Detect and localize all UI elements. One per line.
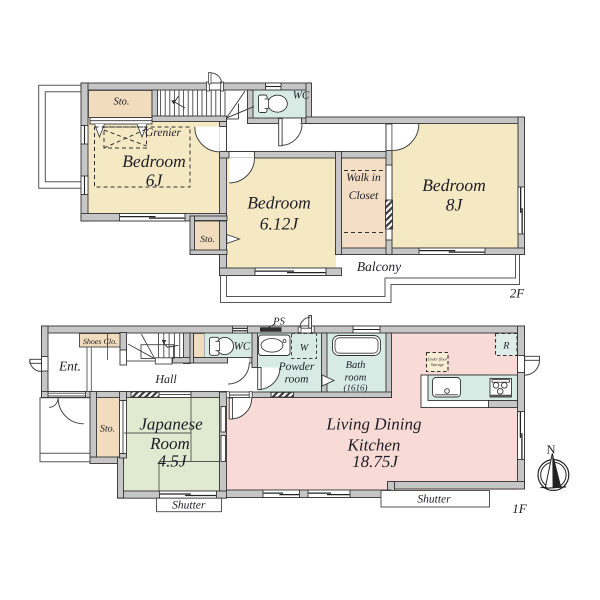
svg-text:Ent.: Ent. bbox=[58, 359, 81, 374]
svg-text:Room: Room bbox=[149, 434, 190, 453]
svg-text:18.75J: 18.75J bbox=[352, 452, 399, 471]
svg-text:Bath: Bath bbox=[346, 360, 366, 371]
svg-text:Bedroom: Bedroom bbox=[247, 193, 311, 213]
svg-text:(1616): (1616) bbox=[344, 383, 368, 393]
svg-text:Bedroom: Bedroom bbox=[422, 175, 486, 195]
svg-text:Shutter: Shutter bbox=[172, 500, 206, 512]
svg-text:Under floor: Under floor bbox=[427, 357, 447, 362]
svg-text:Storage: Storage bbox=[431, 362, 444, 367]
svg-text:Hall: Hall bbox=[154, 372, 177, 386]
svg-text:Living Dining: Living Dining bbox=[326, 415, 422, 434]
svg-text:Powder: Powder bbox=[278, 361, 315, 373]
svg-text:WC: WC bbox=[293, 90, 310, 102]
svg-text:Walk in: Walk in bbox=[346, 172, 381, 184]
svg-text:Sto.: Sto. bbox=[100, 424, 115, 435]
svg-text:N: N bbox=[546, 443, 555, 457]
svg-text:Shoes Clo.: Shoes Clo. bbox=[83, 337, 117, 346]
svg-text:R: R bbox=[502, 341, 509, 352]
svg-text:1F: 1F bbox=[512, 501, 528, 516]
svg-text:Balcony: Balcony bbox=[357, 259, 401, 274]
svg-text:Closet: Closet bbox=[349, 190, 379, 202]
svg-text:room: room bbox=[285, 374, 309, 386]
svg-text:PS: PS bbox=[272, 317, 285, 328]
svg-text:Grenier: Grenier bbox=[145, 127, 182, 139]
svg-text:Japanese: Japanese bbox=[139, 415, 203, 434]
svg-text:4.5J: 4.5J bbox=[158, 452, 188, 471]
svg-text:Bedroom: Bedroom bbox=[122, 151, 186, 171]
svg-text:8J: 8J bbox=[446, 195, 464, 215]
svg-text:Sto.: Sto. bbox=[113, 97, 129, 108]
svg-text:Sto.: Sto. bbox=[200, 235, 215, 245]
svg-text:WC: WC bbox=[234, 341, 251, 353]
svg-text:Shutter: Shutter bbox=[417, 494, 451, 506]
svg-text:6.12J: 6.12J bbox=[260, 214, 300, 234]
svg-text:6J: 6J bbox=[146, 170, 164, 190]
svg-text:2F: 2F bbox=[510, 286, 526, 301]
